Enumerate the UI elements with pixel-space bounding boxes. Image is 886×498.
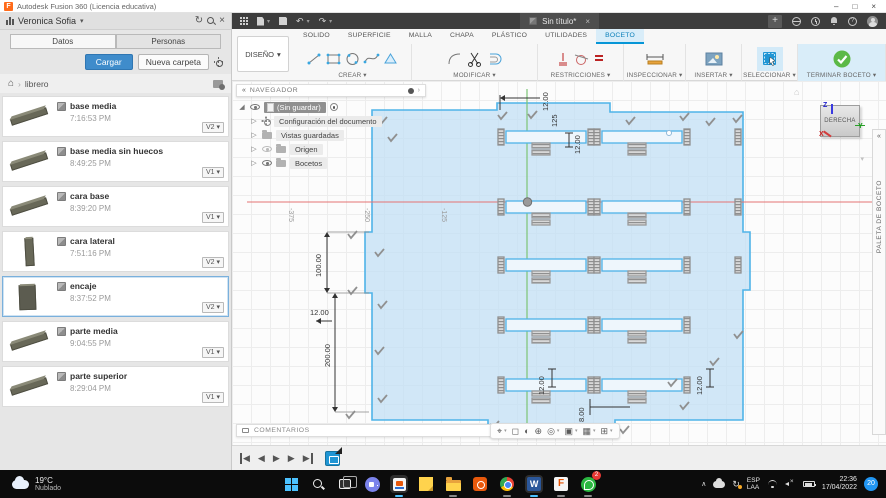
item-thumbnail (3, 232, 57, 271)
language-indicator[interactable]: ESPLAA (747, 477, 760, 491)
navigator-panel: « NAVEGADOR › ◢ (Sin guardar) ▷ Configur… (236, 84, 426, 170)
polygon-tool-icon[interactable] (382, 50, 399, 67)
list-item-selected[interactable]: encaje 8:37:52 PM V2 ▾ (2, 276, 229, 317)
ribbon-tab-superficie[interactable]: SUPERFICIE (339, 29, 400, 44)
notifications-bell-icon[interactable] (830, 17, 838, 25)
group-seleccionar: SELECCIONAR ▾ (742, 44, 798, 81)
ribbon-tab-chapa[interactable]: CHAPA (441, 29, 483, 44)
dim-8-bottom: 8.00 (577, 407, 586, 422)
screenshot-app-icon[interactable] (471, 475, 489, 493)
palette-collapse-icon[interactable]: « (877, 133, 881, 140)
display-settings-icon[interactable]: ▣ (564, 425, 573, 437)
title-bar: F Autodesk Fusion 360 (Licencia educativ… (0, 0, 886, 13)
group-label-inspeccionar[interactable]: INSPECCIONAR ▾ (627, 72, 683, 81)
group-inspeccionar: INSPECCIONAR ▾ (624, 44, 686, 81)
dim-12-top: 12.00 (541, 92, 550, 111)
version-dropdown[interactable]: V2 ▾ (202, 257, 224, 268)
file-explorer-icon[interactable] (444, 475, 462, 493)
view-cube[interactable]: ⌂ Z Y X DERECHA ▾ (808, 97, 870, 149)
whatsapp-badge: 2 (592, 471, 601, 480)
tree-node-sketches[interactable]: ▷ Bocetos (238, 156, 426, 170)
tab-personas[interactable]: Personas (116, 34, 222, 49)
comments-bar[interactable]: COMENTARIOS › (236, 424, 526, 437)
zoom-window-icon[interactable]: ⊕ (535, 425, 543, 437)
group-terminar-boceto: TERMINAR BOCETO ▾ (798, 44, 886, 81)
visibility-eye-icon[interactable] (262, 160, 272, 166)
tree-root-document[interactable]: ◢ (Sin guardar) (238, 100, 426, 114)
finish-sketch-check-icon[interactable] (832, 49, 852, 69)
version-dropdown[interactable]: V1 ▾ (202, 167, 224, 178)
cloud-weather-icon (12, 480, 29, 489)
viewcube-face-label[interactable]: DERECHA (824, 118, 855, 124)
list-item[interactable]: base media 7:16:53 PM V2 ▾ (2, 96, 229, 137)
snipping-tool-icon[interactable] (390, 475, 408, 493)
viewcube-home-icon[interactable]: ⌂ (794, 87, 799, 97)
taskbar-search-icon[interactable] (309, 475, 327, 493)
component-cube-icon (57, 147, 66, 156)
group-label-insertar[interactable]: INSERTAR ▾ (694, 72, 732, 81)
visibility-eye-icon[interactable] (250, 104, 260, 110)
version-dropdown[interactable]: V1 ▾ (202, 392, 224, 403)
list-item[interactable]: parte superior 8:29:04 PM V1 ▾ (2, 366, 229, 407)
volume-muted-icon[interactable] (785, 480, 796, 488)
windows-taskbar: 19°C Nublado W F 2 ∧ ↻ ESPLAA (0, 470, 886, 498)
job-status-clock-icon[interactable] (811, 17, 820, 26)
clock-date[interactable]: 22:3617/04/2022 (822, 476, 857, 492)
grid-snap-icon[interactable]: ▦ (582, 425, 591, 437)
navigator-options-icon[interactable] (408, 88, 414, 94)
equal-constraint-icon[interactable] (592, 50, 606, 67)
upload-button[interactable]: Cargar (85, 54, 133, 70)
navigator-collapse-icon[interactable]: « (242, 87, 246, 94)
axis-x-label: X (819, 131, 824, 138)
user-name[interactable]: Veronica Sofia (18, 16, 76, 26)
group-label-crear[interactable]: CREAR ▾ (338, 72, 366, 81)
dim-12-left: 12.00 (310, 308, 329, 317)
battery-icon[interactable] (803, 481, 815, 487)
version-dropdown[interactable]: V2 ▾ (202, 122, 224, 133)
circle-tool-icon[interactable] (344, 50, 361, 67)
orbit-icon[interactable]: ◐ (524, 425, 529, 437)
timeline-go-end-button[interactable]: ▶ (301, 453, 313, 464)
version-dropdown[interactable]: V1 ▾ (202, 347, 224, 358)
comments-label: COMENTARIOS (254, 427, 502, 434)
start-button[interactable] (282, 475, 300, 493)
component-cube-icon (57, 237, 66, 246)
list-item[interactable]: cara lateral 7:51:16 PM V2 ▾ (2, 231, 229, 272)
document-cube-icon (529, 17, 537, 25)
component-cube-icon (57, 282, 66, 291)
axis-label-250: -250 (363, 208, 370, 222)
weather-desc: Nublado (35, 485, 61, 493)
weather-temp: 19°C (35, 476, 61, 485)
document-tab-label: Sin título* (542, 17, 576, 26)
viewports-icon[interactable]: ⊞ (601, 425, 609, 437)
app-bar: ▾ ↶▾ ↷▾ Sin título* × + ? (232, 13, 886, 29)
version-dropdown[interactable]: V2 ▾ (202, 302, 224, 313)
item-thumbnail (3, 367, 57, 406)
weather-widget[interactable]: 19°C Nublado (0, 476, 230, 493)
new-tab-button[interactable]: + (768, 15, 782, 28)
list-item[interactable]: parte media 9:04:55 PM V1 ▾ (2, 321, 229, 362)
home-icon[interactable]: ⌂ (8, 78, 14, 89)
component-cube-icon (57, 372, 66, 381)
account-avatar[interactable] (867, 16, 878, 27)
wifi-icon[interactable] (767, 480, 778, 488)
ribbon-tab-plastico[interactable]: PLÁSTICO (483, 29, 536, 44)
dimension-constraint-icon[interactable] (555, 50, 571, 67)
breadcrumb-folder[interactable]: librero (25, 79, 49, 89)
viewcube-menu-icon[interactable]: ▾ (860, 155, 864, 163)
document-name: (Sin guardar) (277, 103, 321, 112)
data-panel: Veronica Sofia ▾ ↻ × Datos Personas Carg… (0, 13, 232, 470)
ribbon-tab-malla[interactable]: MALLA (400, 29, 441, 44)
active-document-radio[interactable] (330, 103, 338, 111)
dim-200: 200.00 (323, 344, 332, 367)
folder-icon (276, 160, 286, 167)
fusion360-window: F Autodesk Fusion 360 (Licencia educativ… (0, 0, 886, 498)
panel-settings-gear-icon[interactable] (214, 58, 223, 67)
new-folder-button[interactable]: Nueva carpeta (138, 54, 209, 70)
item-thumbnail (3, 187, 57, 226)
component-cube-icon (57, 102, 66, 111)
view-navigation-bar: ⌖▾ ◻ ◐ ⊕ ◎▾ ▣▾ ▦▾ ⊞▾ (490, 423, 620, 439)
whatsapp-icon[interactable]: 2 (579, 475, 597, 493)
navigator-title: NAVEGADOR (250, 87, 404, 94)
word-icon[interactable]: W (525, 475, 543, 493)
ribbon-tab-solido[interactable]: SOLIDO (294, 29, 339, 44)
dim-12-mid: 12.00 (573, 135, 582, 154)
timeline-sketch-feature[interactable] (325, 451, 340, 466)
design-workspace-dropdown[interactable]: DISEÑO▾ (237, 36, 289, 72)
tree-node-saved-views[interactable]: ▷ Vistas guardadas (238, 128, 426, 142)
palette-label: PALETA DE BOCETO (876, 180, 883, 253)
refresh-icon[interactable]: ↻ (195, 16, 203, 26)
component-cube-icon (57, 327, 66, 336)
group-restricciones: RESTRICCIONES ▾ (538, 44, 624, 81)
zoom-icon[interactable]: ◎ (547, 425, 555, 437)
visibility-eye-icon[interactable] (262, 146, 272, 152)
ribbon-tab-boceto[interactable]: BOCETO (596, 29, 644, 44)
item-thumbnail (3, 277, 57, 316)
extensions-icon[interactable] (792, 17, 801, 26)
task-view-icon[interactable] (336, 475, 354, 493)
group-modificar: MODIFICAR ▾ (412, 44, 538, 81)
item-thumbnail (3, 142, 57, 181)
sync-status-icon[interactable]: ↻ (732, 479, 740, 489)
close-panel-icon[interactable]: × (219, 16, 225, 26)
line-tool-icon[interactable] (306, 50, 323, 67)
folder-icon (276, 146, 286, 153)
document-tab-close-icon[interactable]: × (585, 17, 590, 26)
chrome-icon[interactable] (498, 475, 516, 493)
axis-y-label: Y (858, 123, 863, 130)
close-button[interactable]: × (871, 2, 876, 11)
group-label-terminar-boceto[interactable]: TERMINAR BOCETO ▾ (807, 72, 876, 81)
user-group-icon (6, 17, 14, 25)
file-list: base media 7:16:53 PM V2 ▾ base media si… (0, 93, 231, 407)
app-grid-icon[interactable] (240, 17, 248, 25)
origin-point (523, 198, 531, 206)
folder-icon (262, 132, 272, 139)
insert-image-icon[interactable] (704, 50, 724, 68)
undo-icon[interactable]: ↶ (296, 16, 304, 27)
redo-icon[interactable]: ↷ (319, 16, 327, 27)
list-item[interactable]: cara base 8:39:20 PM V1 ▾ (2, 186, 229, 227)
axis-label-125: -125 (440, 208, 447, 222)
teams-chat-icon[interactable] (363, 475, 381, 493)
version-dropdown[interactable]: V1 ▾ (202, 212, 224, 223)
fusion360-taskbar-icon[interactable]: F (552, 475, 570, 493)
comment-bubble-icon (242, 428, 249, 433)
tray-expand-icon[interactable]: ∧ (701, 480, 706, 488)
notification-count-badge[interactable]: 20 (864, 477, 878, 491)
sticky-notes-icon[interactable] (417, 475, 435, 493)
save-icon[interactable] (279, 17, 287, 25)
item-thumbnail (3, 97, 57, 136)
document-icon (267, 103, 274, 112)
group-label-seleccionar[interactable]: SELECCIONAR ▾ (743, 72, 796, 81)
search-icon[interactable] (207, 17, 215, 25)
offset-tool-icon[interactable] (486, 50, 504, 68)
group-label-modificar[interactable]: MODIFICAR ▾ (453, 72, 495, 81)
list-item[interactable]: base media sin huecos 8:49:25 PM V1 ▾ (2, 141, 229, 182)
pan-icon[interactable]: ⌖ (497, 425, 502, 437)
tree-node-doc-settings[interactable]: ▷ Configuración del documento (238, 114, 426, 128)
dim-12-bottom2: 12.00 (695, 376, 704, 395)
sketch-palette-strip[interactable]: « PALETA DE BOCETO (872, 129, 886, 435)
tangent-constraint-icon[interactable] (573, 50, 590, 67)
timeline-bar: ◀ ◀ ▶ ▶ ▶ (232, 445, 886, 470)
select-tool-icon[interactable] (761, 50, 779, 68)
onedrive-cloud-icon[interactable] (713, 481, 725, 488)
settings-gear-icon (262, 117, 270, 125)
group-crear: CREAR ▾ (294, 44, 412, 81)
fillet-tool-icon[interactable] (446, 50, 464, 68)
tree-node-origin[interactable]: ▷ Origen (238, 142, 426, 156)
axis-z-label: Z (823, 102, 828, 109)
user-dropdown-icon[interactable]: ▾ (80, 17, 84, 25)
breadcrumb: ⌂ › librero (0, 74, 231, 93)
ribbon-tab-utilidades[interactable]: UTILIDADES (536, 29, 596, 44)
timeline-step-back-button[interactable]: ◀ (256, 453, 267, 464)
minimize-button[interactable]: – (834, 2, 838, 11)
fusion-logo-icon: F (4, 2, 13, 11)
group-insertar: INSERTAR ▾ (686, 44, 742, 81)
timeline-step-forward-button[interactable]: ▶ (286, 453, 297, 464)
help-icon[interactable]: ? (848, 17, 857, 26)
spline-tool-icon[interactable] (363, 50, 380, 67)
tab-datos[interactable]: Datos (10, 34, 116, 49)
group-label-restricciones[interactable]: RESTRICCIONES ▾ (551, 72, 611, 81)
navigator-expand-icon[interactable]: › (418, 87, 420, 94)
measure-tool-icon[interactable] (644, 50, 666, 68)
ribbon-toolbar: DISEÑO▾ SOLIDO SUPERFICIE MALLA CHAPA PL… (232, 29, 886, 81)
look-at-icon[interactable]: ◻ (512, 425, 519, 437)
timeline-go-start-button[interactable]: ◀ (240, 453, 252, 464)
file-menu-icon[interactable] (257, 17, 264, 26)
rectangle-tool-icon[interactable] (325, 50, 342, 67)
dim-12-bottom1: 12.00 (537, 376, 546, 395)
item-thumbnail (3, 322, 57, 361)
document-tab[interactable]: Sin título* × (520, 13, 599, 29)
collection-icon[interactable] (213, 80, 223, 88)
window-title: Autodesk Fusion 360 (Licencia educativa) (17, 2, 834, 11)
maximize-button[interactable]: □ (852, 2, 857, 11)
axis-label-375: -375 (287, 208, 294, 222)
sketch-canvas[interactable]: 100.00 200.00 12.00 12.00 125 12.00 12.0… (232, 81, 886, 445)
component-cube-icon (57, 192, 66, 201)
dim-125-top: 125 (550, 114, 559, 127)
trim-scissors-icon[interactable] (466, 50, 484, 68)
timeline-play-button[interactable]: ▶ (271, 453, 282, 464)
dim-100: 100.00 (314, 254, 323, 277)
